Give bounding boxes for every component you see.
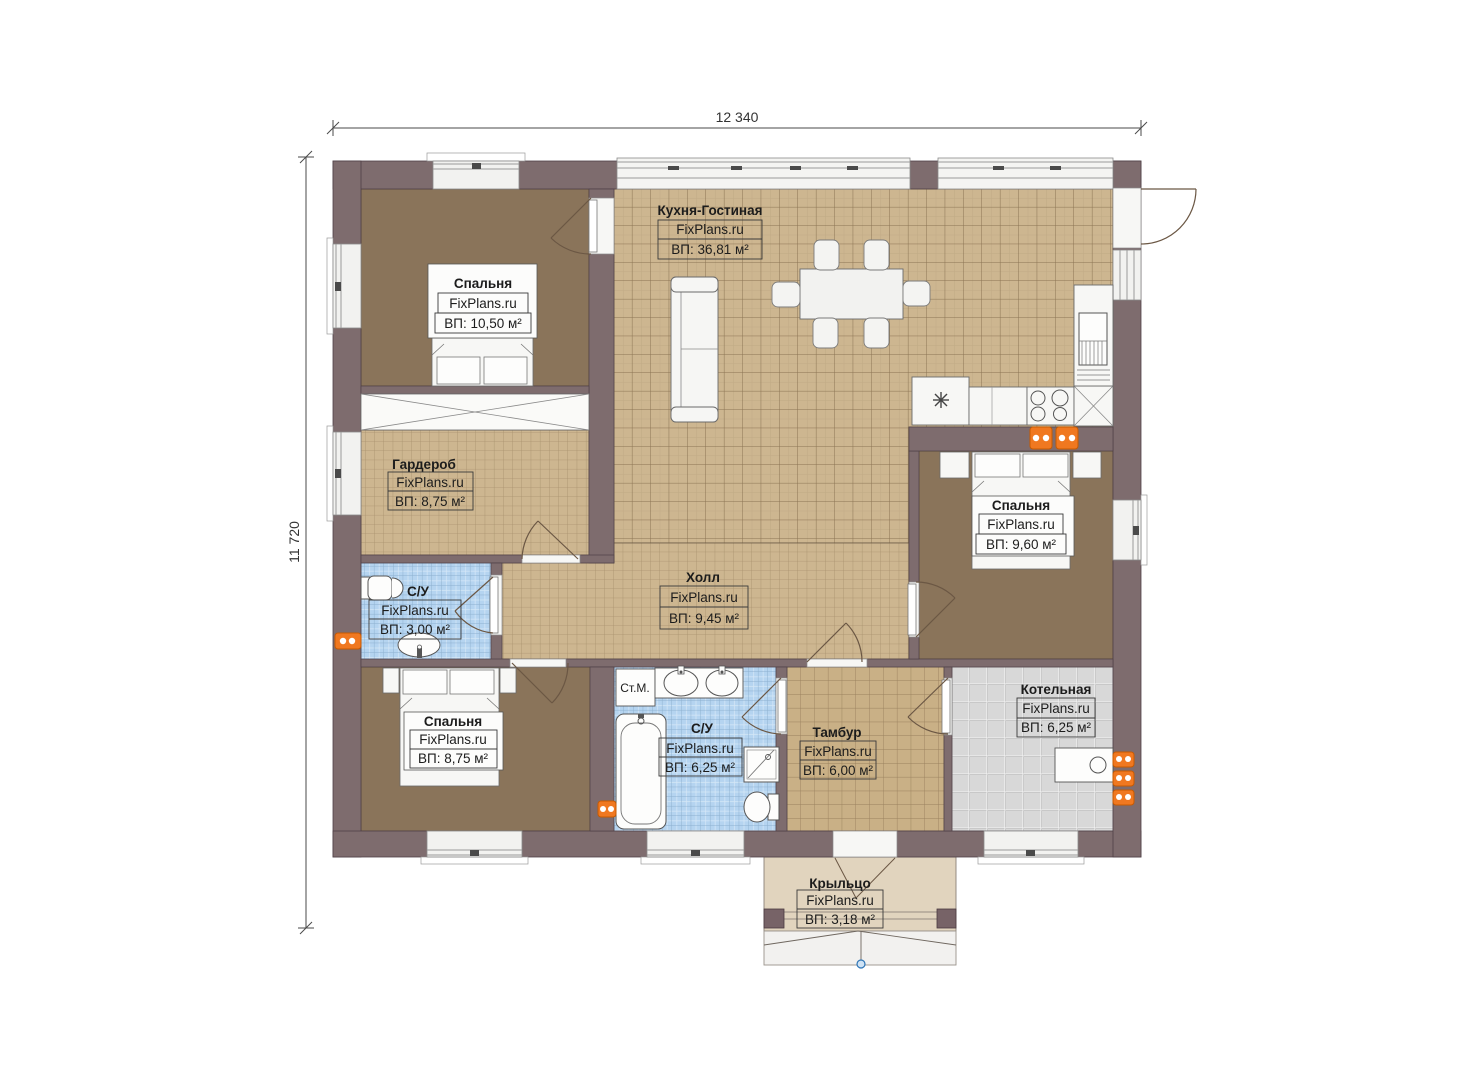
svg-text:12 340: 12 340 [716,109,759,125]
svg-text:11 720: 11 720 [286,521,302,563]
svg-text:ВП: 6,25 м²: ВП: 6,25 м² [665,760,736,775]
svg-text:FixPlans.ru: FixPlans.ru [381,603,449,618]
svg-text:FixPlans.ru: FixPlans.ru [666,741,734,756]
svg-text:Котельная: Котельная [1021,682,1092,697]
svg-text:Тамбур: Тамбур [813,725,862,740]
svg-text:Кухня-Гостиная: Кухня-Гостиная [658,203,763,218]
svg-text:FixPlans.ru: FixPlans.ru [449,296,517,311]
svg-text:ВП: 8,75 м²: ВП: 8,75 м² [395,494,466,509]
svg-text:ВП: 6,25 м²: ВП: 6,25 м² [1021,720,1092,735]
svg-text:ВП: 6,00 м²: ВП: 6,00 м² [803,763,874,778]
svg-text:Гардероб: Гардероб [392,457,456,472]
svg-text:ВП: 9,60 м²: ВП: 9,60 м² [986,537,1057,552]
svg-text:FixPlans.ru: FixPlans.ru [806,893,874,908]
svg-text:FixPlans.ru: FixPlans.ru [1022,701,1090,716]
svg-text:Спальня: Спальня [424,714,482,729]
svg-text:Спальня: Спальня [454,276,512,291]
svg-text:FixPlans.ru: FixPlans.ru [804,744,872,759]
svg-text:ВП: 36,81 м²: ВП: 36,81 м² [671,242,749,257]
svg-text:FixPlans.ru: FixPlans.ru [670,590,738,605]
svg-text:Крыльцо: Крыльцо [809,876,870,891]
svg-text:Ст.М.: Ст.М. [620,681,650,695]
svg-text:FixPlans.ru: FixPlans.ru [987,517,1055,532]
svg-text:ВП: 10,50 м²: ВП: 10,50 м² [444,316,522,331]
svg-text:С/У: С/У [407,584,430,599]
svg-text:Холл: Холл [686,570,720,585]
svg-text:FixPlans.ru: FixPlans.ru [396,475,464,490]
svg-text:ВП: 3,18 м²: ВП: 3,18 м² [805,912,876,927]
svg-text:FixPlans.ru: FixPlans.ru [676,222,744,237]
svg-text:ВП: 9,45 м²: ВП: 9,45 м² [669,611,740,626]
svg-text:С/У: С/У [691,721,714,736]
svg-text:Спальня: Спальня [992,498,1050,513]
svg-text:ВП: 8,75 м²: ВП: 8,75 м² [418,751,489,766]
svg-text:ВП: 3,00 м²: ВП: 3,00 м² [380,622,451,637]
svg-text:FixPlans.ru: FixPlans.ru [419,732,487,747]
